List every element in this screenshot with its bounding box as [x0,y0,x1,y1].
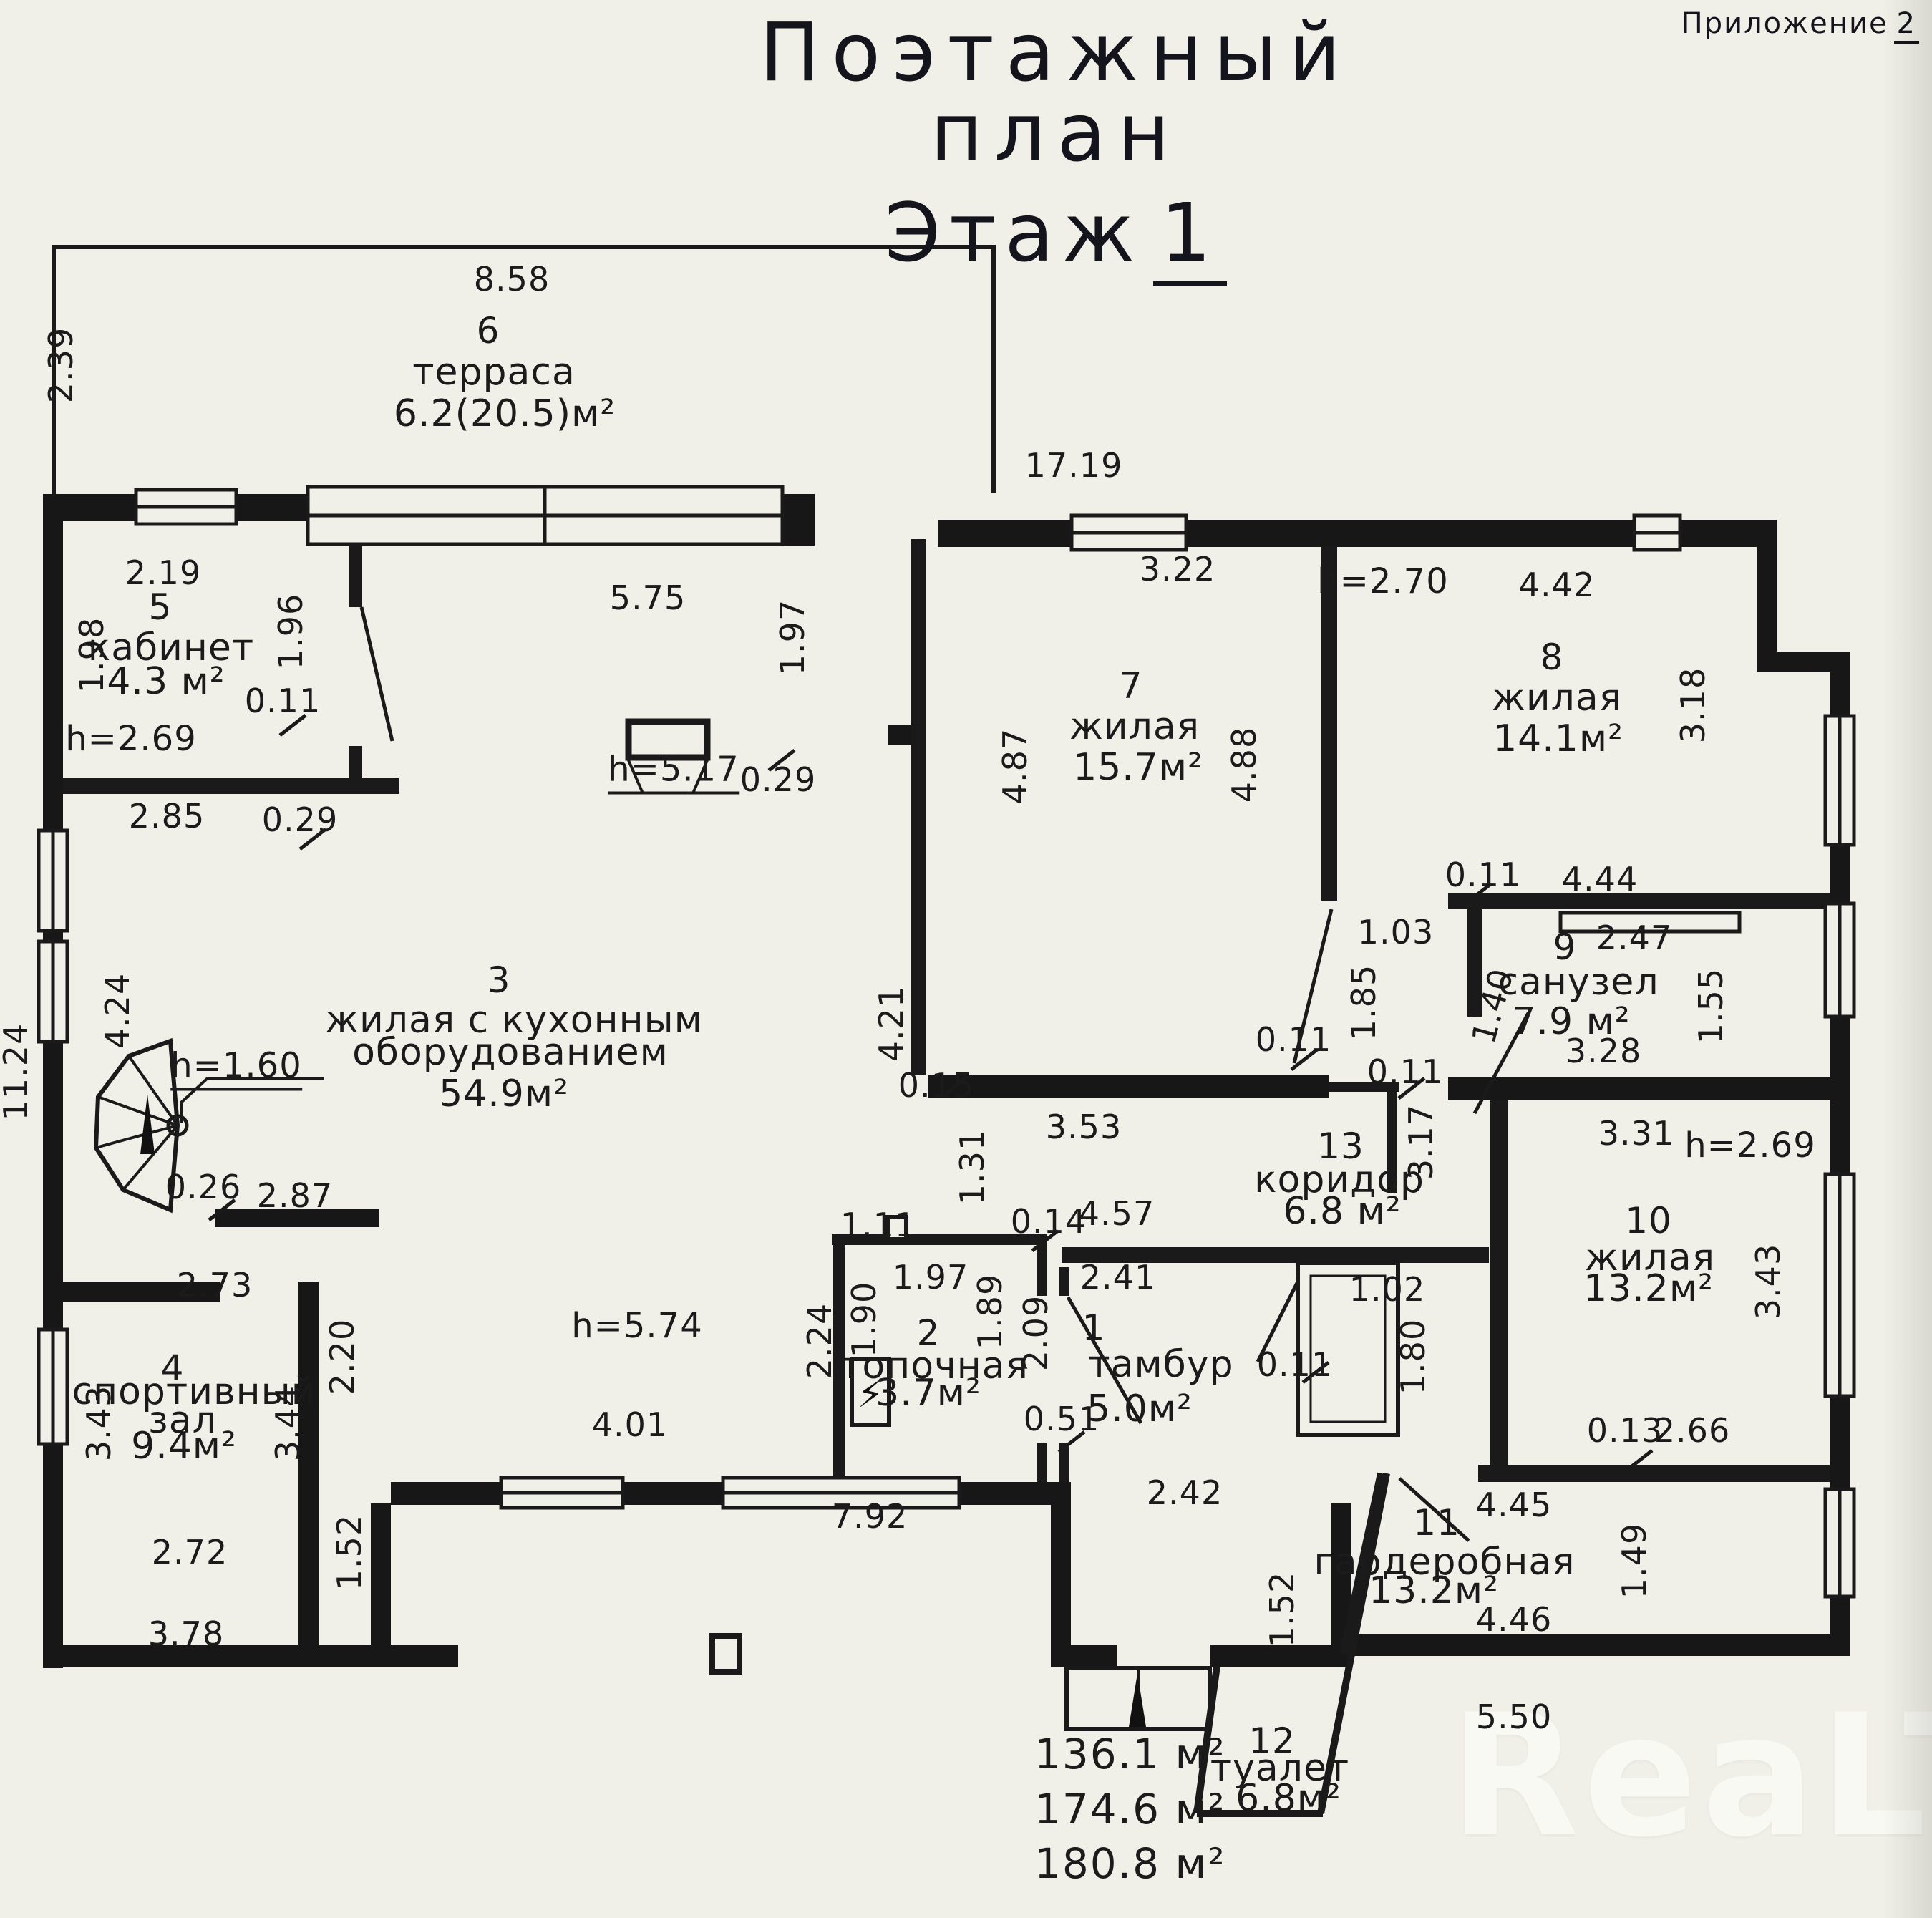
room-area: 4.3 м² [107,660,225,703]
dimension-label: 0.29 [740,760,816,799]
dimension-label: 0.11 [1445,856,1521,894]
dimension-label: 11.24 [0,1023,35,1121]
dimension-label: 3.44 [268,1385,307,1461]
dimension-label: 2.73 [177,1266,253,1304]
floor-plan-page: ⚡ Поэтажный план Этаж1 [0,0,1932,1918]
room-name: жилая [1492,677,1622,720]
dimension-label: 1.03 [1358,913,1434,951]
dimension-label: 3.78 [148,1614,224,1653]
page-edge-shadow [1882,0,1932,1918]
annex-word: Приложение [1681,7,1888,40]
dimension-label: 1.52 [1263,1571,1301,1647]
dimension-label: 1.11 [840,1206,916,1244]
dimension-label: 7.92 [832,1497,908,1536]
dimension-label: 3.17 [1402,1104,1440,1180]
room-area: 9.4м² [131,1425,237,1468]
room-name: санузел [1497,961,1659,1004]
dimension-label: 2.09 [1016,1295,1055,1371]
dimension-label: 1.97 [773,599,812,675]
room-number: 10 [1625,1200,1672,1241]
dimension-label: 0.11 [1257,1345,1333,1384]
dimension-label: 1.97 [893,1258,969,1297]
dimension-label: 3.22 [1140,550,1215,589]
dimension-label: 4.88 [1225,727,1263,803]
total-building-area: 180.8 м² [1034,1836,1225,1892]
dimension-label: 4.45 [1476,1486,1552,1524]
room-name: терраса [412,351,576,394]
dimension-label: 4.57 [1079,1194,1155,1233]
dimension-label: 0.29 [262,800,338,839]
room-area: 15.7м² [1073,746,1203,789]
dimension-label: 5.75 [610,578,686,617]
dimension-label: 1.55 [1691,968,1730,1044]
dimension-label: 4.87 [996,728,1034,804]
room-area: 6.2(20.5)м² [394,392,616,435]
room-area: 14.1м² [1493,717,1623,760]
dimension-label: 0.26 [165,1168,241,1206]
dimension-label: 3.18 [1674,667,1712,743]
dimension-label: 2.47 [1596,919,1672,957]
dimension-label: 4.46 [1476,1600,1552,1639]
room-name: оборудованием [352,1031,669,1074]
room-name: тамбур [1088,1343,1233,1386]
room-number: 3 [487,959,511,1001]
staircase-arrow [140,1094,155,1154]
floor-word: Этаж [885,187,1143,280]
height-label: h=2.69 [65,719,197,759]
dimension-label: 2.39 [42,327,80,403]
title-line1: Поэтажный план [759,6,1351,180]
dimension-label: 2.42 [1147,1473,1223,1512]
room-area: 13.2м² [1583,1267,1714,1310]
dimension-label: 17.19 [1025,446,1123,485]
room-area: 54.9м² [439,1072,569,1115]
total-area: 174.6 м² [1034,1782,1225,1837]
dimension-label: 2.85 [129,797,205,836]
dimension-label: 0.11 [1367,1052,1443,1091]
dimension-label: 2.20 [323,1319,361,1395]
dimension-label: 2.87 [257,1176,333,1215]
room-name: жилая [1069,705,1200,748]
dimension-label: 0.11 [245,682,321,720]
dimension-label: 2.41 [1080,1258,1156,1297]
dimension-label: 2.24 [800,1303,839,1379]
floor-plan-drawing: ⚡ [0,0,1932,1918]
dimension-label: 1.31 [953,1129,991,1205]
room-number: 8 [1540,636,1564,678]
dimension-label: 3.43 [79,1385,118,1461]
area-totals: 136.1 м² 174.6 м² 180.8 м² [1034,1727,1225,1892]
dimension-label: 4.24 [98,973,137,1049]
room-area: 6.8м² [1236,1777,1341,1820]
entrance-arrow [1129,1673,1146,1727]
room-area: 5.0м² [1087,1387,1193,1430]
dimension-label: 4.44 [1562,860,1638,899]
dimension-label: 1.49 [1615,1523,1654,1599]
height-label: h=2.69 [1684,1125,1816,1166]
room-number: 11 [1413,1502,1460,1544]
dimension-label: 0.11 [1256,1020,1331,1059]
dimension-label: 1.85 [1344,964,1383,1040]
room-area: 6.8 м² [1283,1190,1401,1233]
dimension-label: 0.15 [898,1066,974,1105]
dimension-label: 1.96 [271,594,310,669]
dimension-label: 3.31 [1598,1114,1674,1153]
title-line2: Этаж1 [618,193,1494,273]
dimension-label: 1.98 [72,617,111,693]
dimension-label: 3.28 [1565,1032,1641,1070]
room-number: 7 [1120,665,1143,707]
room-area: 3.7м² [875,1372,981,1415]
dimension-label: 1.52 [330,1514,369,1590]
dimension-label: 4.21 [872,986,911,1062]
dimension-label: 8.58 [474,260,550,299]
dimension-label: 0.14 [1011,1202,1087,1241]
height-label: h=5.17 [608,750,739,795]
dimension-label: 2.72 [152,1533,228,1571]
dimension-label: 4.01 [592,1405,668,1444]
dimension-label: 3.53 [1046,1108,1122,1146]
dimension-label: 4.42 [1519,566,1595,604]
height-label: h=1.60 [170,1046,302,1091]
floor-number: 1 [1153,187,1227,286]
dimension-label: 1.89 [971,1274,1009,1350]
room-number: 6 [477,310,500,352]
room-number: 5 [149,586,173,628]
dimension-label: 0.51 [1024,1400,1100,1438]
dimension-label: 5.50 [1476,1697,1552,1736]
height-label: h=5.74 [571,1306,703,1346]
total-living-area: 136.1 м² [1034,1727,1225,1782]
dimension-label: 2.66 [1654,1411,1730,1450]
dimension-label: 0.13 [1587,1411,1663,1450]
dimension-label: 1.02 [1349,1270,1425,1309]
height-label: h=2.70 [1317,561,1449,601]
dimension-label: 1.80 [1394,1319,1432,1395]
dimension-label: 3.43 [1749,1244,1787,1319]
page-title: Поэтажный план Этаж1 [618,13,1494,273]
